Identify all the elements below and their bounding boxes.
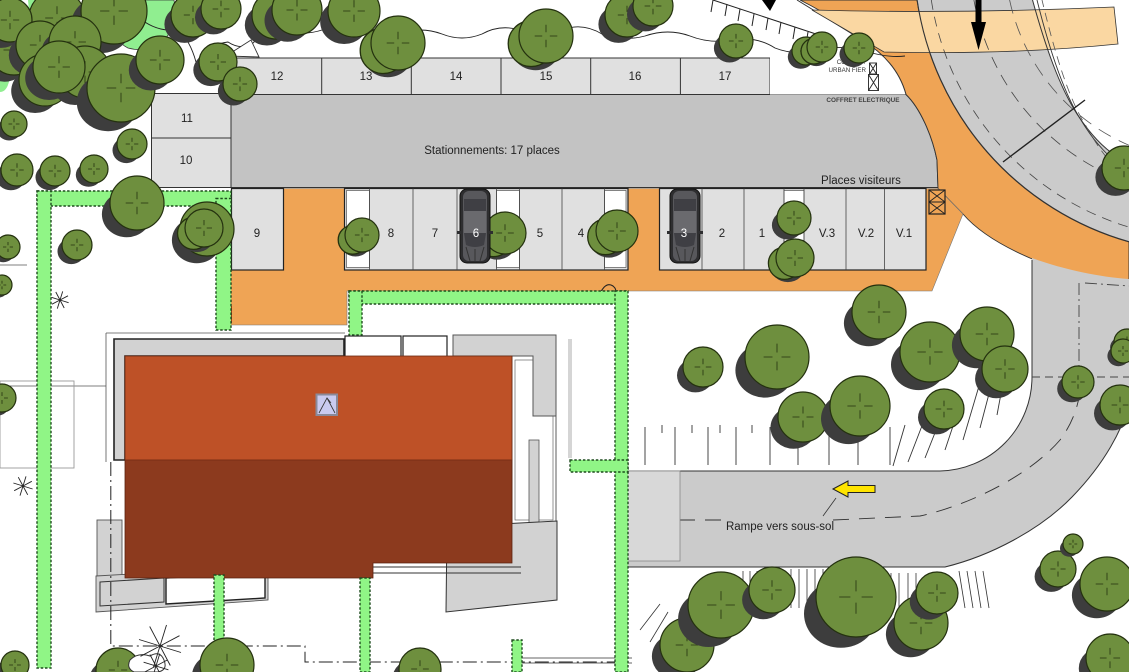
svg-text:6: 6 [473, 228, 479, 240]
svg-text:5: 5 [537, 228, 543, 240]
svg-text:URBAN FIER: URBAN FIER [829, 67, 867, 74]
svg-text:8: 8 [388, 228, 394, 240]
svg-text:17: 17 [719, 71, 732, 83]
svg-text:3: 3 [681, 228, 687, 240]
svg-text:7: 7 [432, 228, 438, 240]
svg-text:Places visiteurs: Places visiteurs [821, 175, 901, 187]
svg-text:12: 12 [271, 71, 284, 83]
svg-text:Rampe vers sous-sol: Rampe vers sous-sol [726, 521, 834, 533]
svg-text:11: 11 [181, 113, 193, 125]
svg-text:1: 1 [759, 228, 765, 240]
svg-text:13: 13 [360, 71, 373, 83]
svg-text:V.2: V.2 [858, 228, 874, 240]
svg-text:V.3: V.3 [819, 228, 835, 240]
svg-text:9: 9 [254, 228, 260, 240]
svg-text:15: 15 [540, 71, 553, 83]
svg-text:10: 10 [180, 155, 193, 167]
svg-text:4: 4 [578, 228, 585, 240]
svg-text:2: 2 [719, 228, 725, 240]
svg-text:14: 14 [450, 71, 463, 83]
svg-text:16: 16 [629, 71, 642, 83]
svg-text:V.1: V.1 [896, 228, 912, 240]
svg-text:COFFRET ELECTRIQUE: COFFRET ELECTRIQUE [826, 97, 900, 104]
svg-text:Stationnements: 17 places: Stationnements: 17 places [424, 145, 560, 157]
